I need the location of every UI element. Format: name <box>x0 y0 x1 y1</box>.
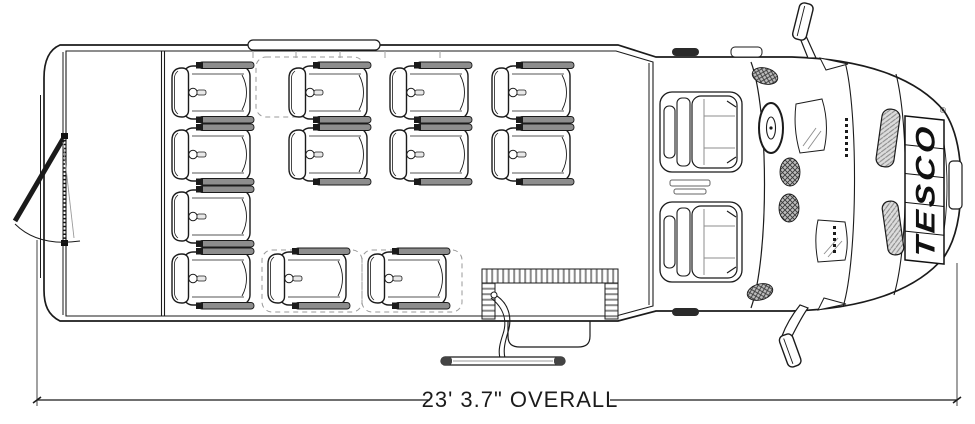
open-door-cap-right <box>554 357 565 365</box>
grille-logo: TESCO <box>905 116 944 264</box>
floor-plan-canvas: TESCO ® 23' 3.7" OV <box>0 0 975 424</box>
step-well-hatch-right <box>605 283 618 319</box>
lower-step <box>508 321 590 347</box>
rear-door-hinge-bottom <box>61 240 68 246</box>
passenger-seat <box>268 248 350 309</box>
passenger-seat <box>172 62 254 123</box>
door-arm-pivot <box>491 292 497 298</box>
overall-length-label: 23' 3.7" OVERALL <box>422 387 619 412</box>
roof-marker-light-top <box>672 48 699 56</box>
roof-vent <box>248 40 380 50</box>
passenger-seat <box>172 124 254 185</box>
passenger-seat <box>289 62 371 123</box>
passenger-seat <box>289 124 371 185</box>
passenger-seat <box>492 62 574 123</box>
steering-wheel <box>759 103 783 153</box>
console-hatch-mid-b <box>779 194 799 222</box>
passenger-seat <box>390 124 472 185</box>
passenger-seat <box>492 124 574 185</box>
registered-mark: ® <box>940 106 946 115</box>
cab-seat <box>660 92 742 172</box>
cab-seat <box>660 202 742 282</box>
license-plate-bracket <box>949 161 962 209</box>
side-mirror-bottom <box>778 305 808 368</box>
passenger-seat <box>368 248 450 309</box>
roof-clearance-light <box>731 47 762 57</box>
roof-marker-light-bottom <box>672 308 699 316</box>
windshield-pane-bottom <box>816 220 848 262</box>
open-door-cap-left <box>441 357 452 365</box>
step-well-hatch-left <box>482 283 495 319</box>
passenger-seat <box>172 248 254 309</box>
console-hatch-mid-a <box>780 158 800 186</box>
rear-door-hinge-top <box>61 133 68 139</box>
passenger-seat <box>390 62 472 123</box>
brand-logo-text: TESCO <box>910 121 941 258</box>
step-well-hatch-top <box>482 269 618 283</box>
side-mirror-top <box>792 2 816 58</box>
passenger-seat <box>172 186 254 247</box>
